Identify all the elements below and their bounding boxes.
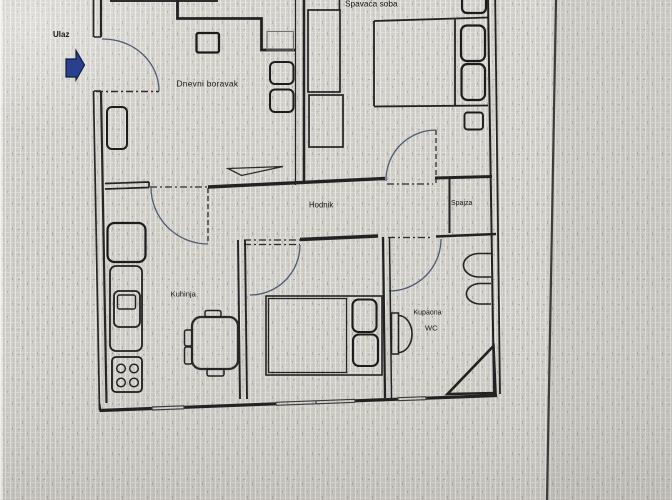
svg-text:Spajza: Spajza <box>451 200 473 207</box>
svg-text:Spavaća soba: Spavaća soba <box>345 0 398 9</box>
svg-text:Ulaz: Ulaz <box>53 30 69 39</box>
svg-text:Kupaona: Kupaona <box>414 310 442 317</box>
svg-text:Dnevni boravak: Dnevni boravak <box>177 79 239 89</box>
svg-text:Kuhinja: Kuhinja <box>171 290 197 299</box>
svg-text:Hodnik: Hodnik <box>309 201 333 210</box>
svg-text:WC: WC <box>425 324 438 333</box>
